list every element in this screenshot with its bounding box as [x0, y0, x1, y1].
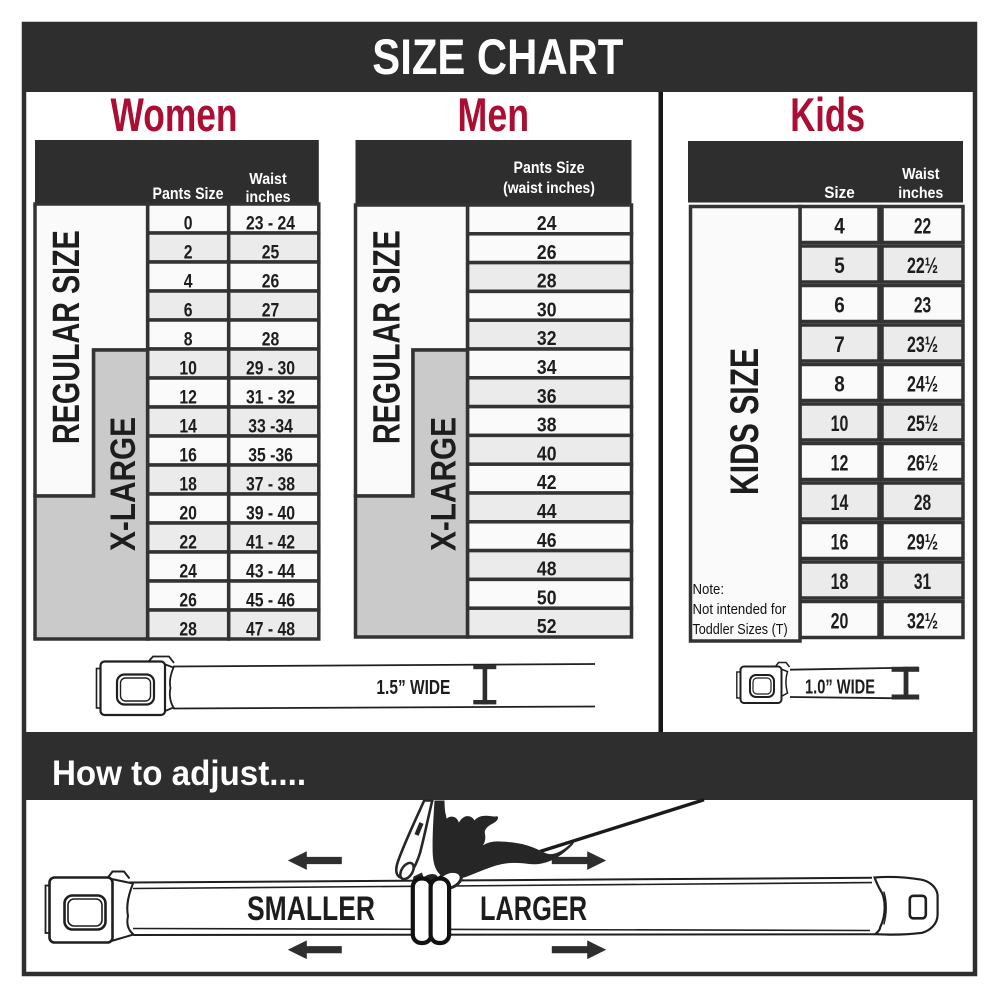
svg-text:How to adjust....: How to adjust....: [52, 754, 306, 793]
svg-text:37 - 38: 37 - 38: [246, 473, 295, 495]
svg-text:22½: 22½: [907, 254, 938, 279]
svg-text:45 - 46: 45 - 46: [246, 589, 295, 611]
svg-text:29 - 30: 29 - 30: [246, 357, 295, 379]
svg-text:31: 31: [914, 571, 932, 595]
svg-text:Waist: Waist: [249, 170, 286, 188]
svg-text:4: 4: [834, 214, 845, 239]
svg-text:24½: 24½: [907, 372, 938, 397]
svg-text:SIZE CHART: SIZE CHART: [372, 28, 623, 84]
svg-text:KIDS SIZE: KIDS SIZE: [723, 348, 767, 495]
svg-text:X-LARGE: X-LARGE: [424, 417, 463, 551]
svg-text:Pants Size: Pants Size: [514, 159, 585, 177]
svg-text:28: 28: [262, 328, 280, 350]
svg-text:26: 26: [262, 270, 280, 292]
svg-text:28: 28: [179, 618, 197, 640]
svg-text:7: 7: [834, 333, 845, 358]
svg-text:36: 36: [537, 385, 557, 407]
svg-text:22: 22: [914, 215, 931, 239]
svg-text:41 - 42: 41 - 42: [246, 531, 295, 553]
svg-text:Men: Men: [458, 88, 530, 141]
svg-text:25: 25: [262, 241, 280, 263]
svg-text:Kids: Kids: [790, 89, 865, 141]
svg-text:46: 46: [537, 529, 557, 551]
svg-text:47 - 48: 47 - 48: [246, 618, 295, 640]
svg-text:6: 6: [184, 299, 193, 321]
svg-text:28: 28: [537, 270, 557, 292]
svg-text:10: 10: [831, 412, 849, 437]
svg-text:18: 18: [831, 570, 849, 595]
svg-text:14: 14: [179, 415, 197, 437]
svg-text:26½: 26½: [907, 451, 938, 476]
svg-text:23 - 24: 23 - 24: [246, 212, 295, 234]
svg-text:Toddler Sizes (T): Toddler Sizes (T): [693, 620, 788, 637]
svg-text:6: 6: [834, 293, 845, 318]
svg-text:23: 23: [914, 294, 931, 318]
svg-text:Note:: Note:: [693, 580, 725, 597]
svg-text:24: 24: [179, 560, 197, 582]
svg-text:4: 4: [184, 270, 193, 292]
svg-text:20: 20: [831, 609, 849, 634]
svg-text:30: 30: [537, 298, 557, 320]
svg-text:Size: Size: [824, 183, 855, 202]
svg-text:REGULAR SIZE: REGULAR SIZE: [367, 230, 409, 444]
svg-text:42: 42: [537, 471, 557, 493]
svg-text:REGULAR SIZE: REGULAR SIZE: [46, 230, 88, 444]
svg-text:24: 24: [537, 212, 557, 234]
svg-text:Not intended for: Not intended for: [693, 600, 787, 617]
svg-text:40: 40: [537, 442, 557, 464]
svg-text:52: 52: [537, 615, 557, 637]
svg-text:Waist: Waist: [902, 165, 939, 183]
svg-text:26: 26: [179, 589, 197, 611]
svg-text:20: 20: [179, 502, 197, 524]
svg-text:1.5” WIDE: 1.5” WIDE: [376, 676, 450, 698]
svg-text:48: 48: [537, 558, 557, 580]
svg-text:X-LARGE: X-LARGE: [104, 417, 143, 551]
svg-text:31 - 32: 31 - 32: [246, 386, 295, 408]
svg-text:32: 32: [537, 327, 557, 349]
svg-text:5: 5: [834, 254, 845, 279]
svg-text:2: 2: [184, 241, 193, 263]
svg-text:12: 12: [179, 386, 197, 408]
svg-text:16: 16: [179, 444, 197, 466]
svg-text:32½: 32½: [907, 609, 938, 634]
svg-text:0: 0: [184, 212, 193, 234]
svg-text:50: 50: [537, 586, 557, 608]
svg-text:8: 8: [184, 328, 193, 350]
svg-text:29½: 29½: [907, 530, 938, 555]
svg-text:28: 28: [914, 492, 932, 516]
svg-text:Women: Women: [111, 88, 238, 141]
svg-text:inches: inches: [898, 184, 943, 202]
svg-text:10: 10: [179, 357, 197, 379]
svg-text:25½: 25½: [907, 412, 938, 437]
svg-text:26: 26: [537, 241, 557, 263]
svg-text:27: 27: [262, 299, 280, 321]
svg-text:LARGER: LARGER: [480, 891, 587, 928]
svg-text:(waist inches): (waist inches): [503, 179, 595, 197]
svg-text:12: 12: [831, 451, 849, 476]
svg-text:35 -36: 35 -36: [248, 444, 293, 466]
svg-text:8: 8: [834, 372, 845, 397]
svg-text:16: 16: [831, 530, 849, 555]
svg-text:SMALLER: SMALLER: [247, 890, 375, 928]
svg-text:14: 14: [831, 491, 849, 516]
svg-text:34: 34: [537, 356, 557, 378]
svg-text:Pants Size: Pants Size: [153, 185, 224, 203]
svg-text:39 - 40: 39 - 40: [246, 502, 295, 524]
svg-text:23½: 23½: [907, 333, 938, 358]
svg-text:38: 38: [537, 414, 557, 436]
svg-text:44: 44: [537, 500, 557, 522]
svg-text:22: 22: [179, 531, 197, 553]
svg-text:33 -34: 33 -34: [248, 415, 293, 437]
svg-text:1.0” WIDE: 1.0” WIDE: [805, 675, 875, 698]
svg-text:43 - 44: 43 - 44: [246, 560, 295, 582]
svg-text:18: 18: [179, 473, 197, 495]
